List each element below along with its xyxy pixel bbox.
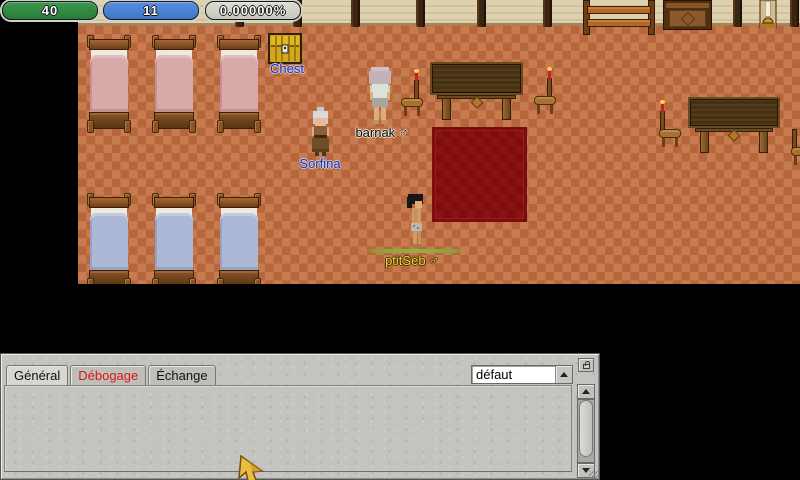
tab-debug[interactable]: Débogage <box>70 365 146 385</box>
table <box>430 62 523 120</box>
resize-grip[interactable] <box>589 471 598 479</box>
wall-pillar <box>733 0 742 27</box>
channel-dropdown-value: défaut <box>472 366 555 383</box>
chat-message-area[interactable] <box>4 385 572 472</box>
exp-bar: 0.00000% <box>205 1 301 20</box>
wall-pillar <box>477 0 486 27</box>
scroll-up-button[interactable] <box>577 384 595 399</box>
barnak-label: barnak ♂ <box>355 126 408 140</box>
sorfina-label: Sorfina <box>299 157 340 171</box>
game-viewport[interactable]: Chest Sorfina <box>78 0 800 284</box>
chest-label: Chest <box>270 62 304 76</box>
game-screen: Chest Sorfina <box>0 0 800 480</box>
bed-pink <box>151 35 197 134</box>
cabinet <box>663 0 712 30</box>
scrollbar-thumb[interactable] <box>579 400 593 457</box>
mouse-cursor-icon <box>238 455 266 480</box>
wall-shelf <box>583 0 655 35</box>
table <box>688 97 780 155</box>
player-barnak[interactable] <box>368 67 392 130</box>
chair-with-candle <box>533 75 557 115</box>
arrow-up-icon <box>582 389 590 394</box>
wall-pillar <box>351 0 360 27</box>
channel-dropdown-button[interactable] <box>555 366 572 383</box>
chevron-up-icon <box>560 372 568 377</box>
tab-trade[interactable]: Échange <box>148 365 215 385</box>
hp-bar: 40 <box>2 1 98 20</box>
mp-bar: 11 <box>103 1 199 20</box>
red-carpet <box>432 127 527 222</box>
wall-pillar <box>416 0 425 27</box>
mp-value: 11 <box>143 3 159 18</box>
sticky-button[interactable] <box>578 358 594 372</box>
bed-blue <box>86 193 132 284</box>
exp-value: 0.00000% <box>220 3 287 18</box>
chair-with-candle <box>658 108 682 148</box>
wall-pillar <box>790 0 799 27</box>
chat-tab-bar: Général Débogage Échange <box>6 365 216 385</box>
grandfather-clock <box>758 0 778 33</box>
tab-general[interactable]: Général <box>6 365 68 385</box>
chair <box>790 126 800 166</box>
bed-blue <box>151 193 197 284</box>
channel-dropdown[interactable]: défaut <box>471 365 573 384</box>
wall-pillar <box>543 0 552 27</box>
pin-icon <box>583 364 590 369</box>
bed-pink <box>86 35 132 134</box>
ptitseb-label: ptitSeb ♂ <box>385 254 439 268</box>
chat-window: Général Débogage Échange défaut <box>0 353 600 480</box>
chair-with-candle <box>400 77 424 117</box>
player-ptitseb[interactable] <box>405 194 428 255</box>
hp-value: 40 <box>42 3 58 18</box>
bed-pink <box>216 35 262 134</box>
bed-blue <box>216 193 262 284</box>
